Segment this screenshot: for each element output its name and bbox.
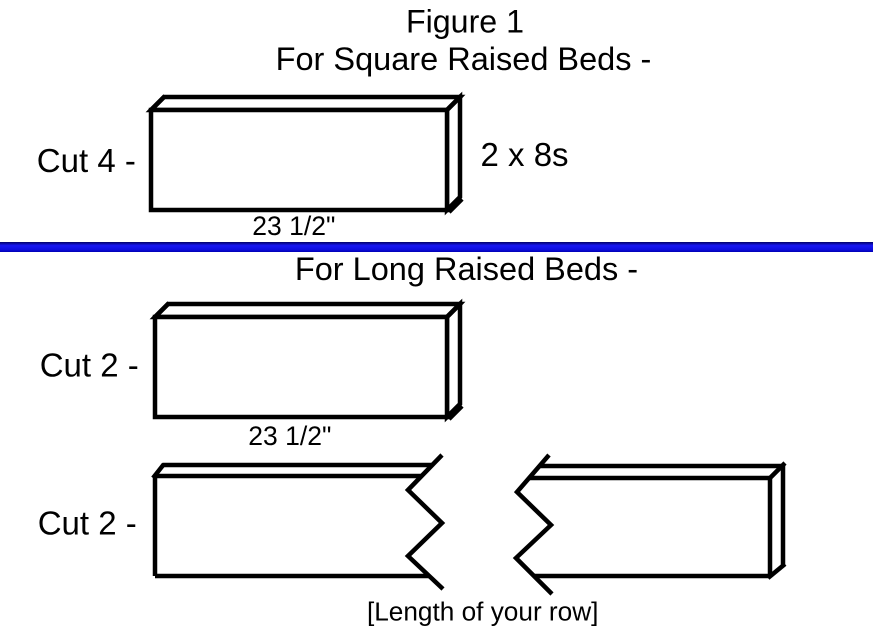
svg-text:For Long Raised Beds -: For Long Raised Beds -: [295, 251, 638, 287]
svg-text:For Square Raised Beds -: For Square Raised Beds -: [276, 41, 652, 77]
svg-text:Cut 2 -: Cut 2 -: [38, 505, 137, 542]
svg-text:Cut 4 -: Cut 4 -: [37, 142, 136, 179]
svg-text:Figure 1: Figure 1: [406, 3, 524, 39]
svg-text:23 1/2": 23 1/2": [248, 421, 331, 451]
svg-text:23 1/2": 23 1/2": [252, 211, 335, 241]
svg-text:Cut 2 -: Cut 2 -: [40, 347, 139, 384]
svg-text:[Length of your row]: [Length of your row]: [367, 596, 598, 626]
svg-text:2 x 8s: 2 x 8s: [481, 136, 569, 173]
